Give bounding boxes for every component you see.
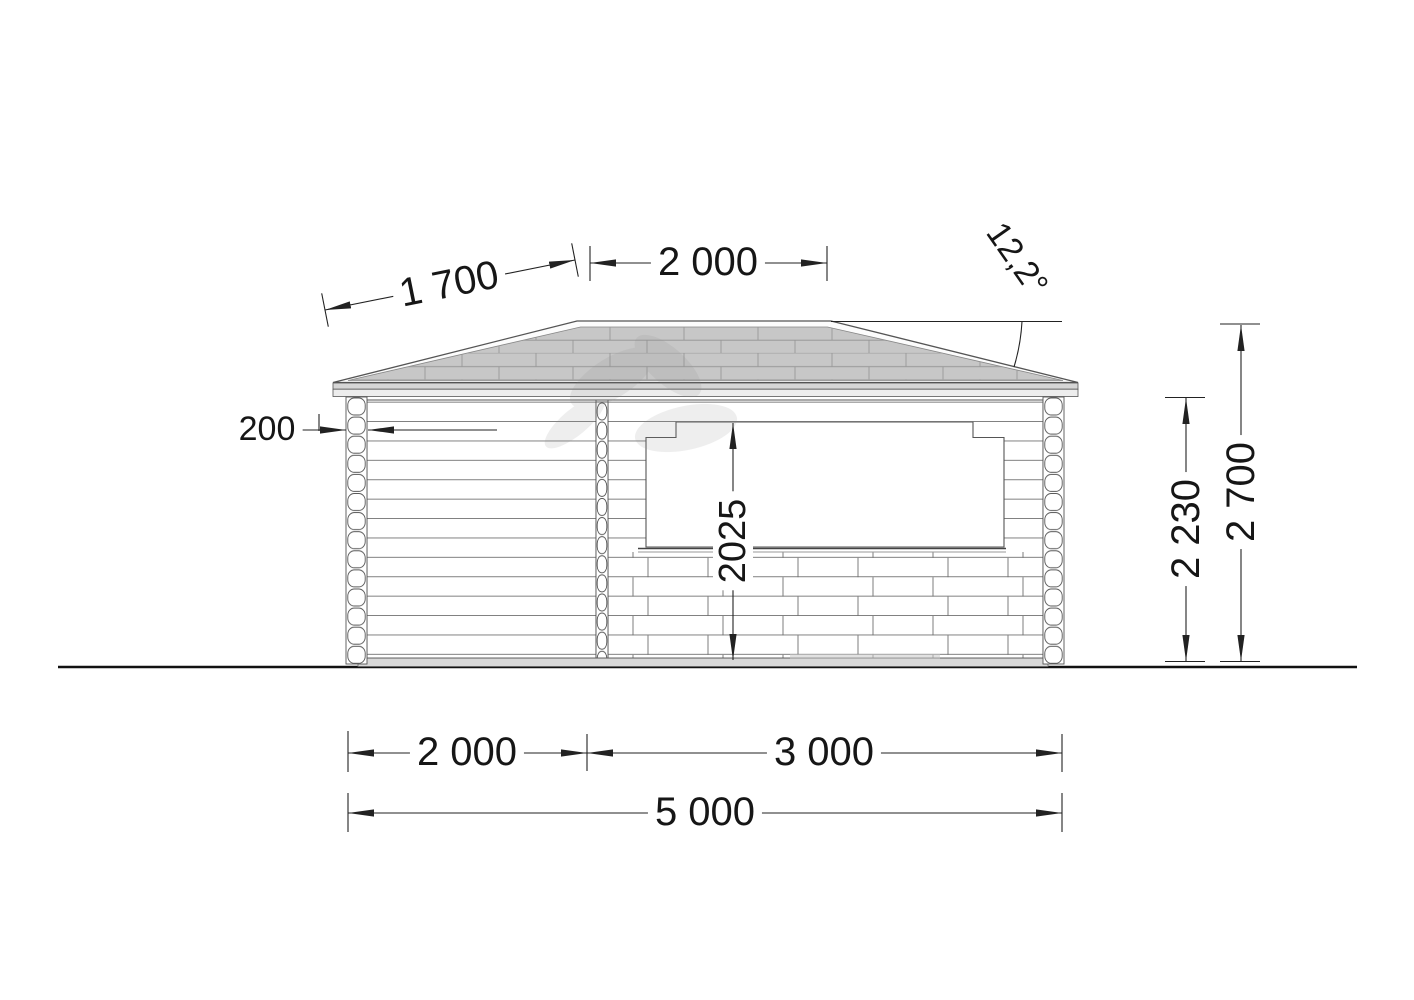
dimension-label-opening-height: 2025 xyxy=(713,492,753,591)
dimension-label-span-right: 3 000 xyxy=(767,731,881,773)
fascia-upper xyxy=(333,383,1078,389)
base-strip xyxy=(358,658,1048,667)
dimension-label-wall-height: 2 230 xyxy=(1165,472,1207,586)
watermark-text-strip xyxy=(790,654,940,659)
middle-post xyxy=(596,402,608,658)
elevation-drawing: 1 700 2 000 12,2° 200 2025 2 230 2 700 2… xyxy=(0,0,1414,1000)
dimension-label-total-height: 2 700 xyxy=(1220,435,1262,549)
dimension-label-span-left: 2 000 xyxy=(410,731,524,773)
roof xyxy=(333,321,1078,397)
fascia-lower xyxy=(333,389,1078,396)
dimension-label-ridge: 2 000 xyxy=(651,241,765,283)
corner-post-right xyxy=(1043,397,1064,664)
corner-post-left xyxy=(346,397,367,664)
dimension-label-span-total: 5 000 xyxy=(648,791,762,833)
dimension-label-post-width: 200 xyxy=(232,411,303,447)
